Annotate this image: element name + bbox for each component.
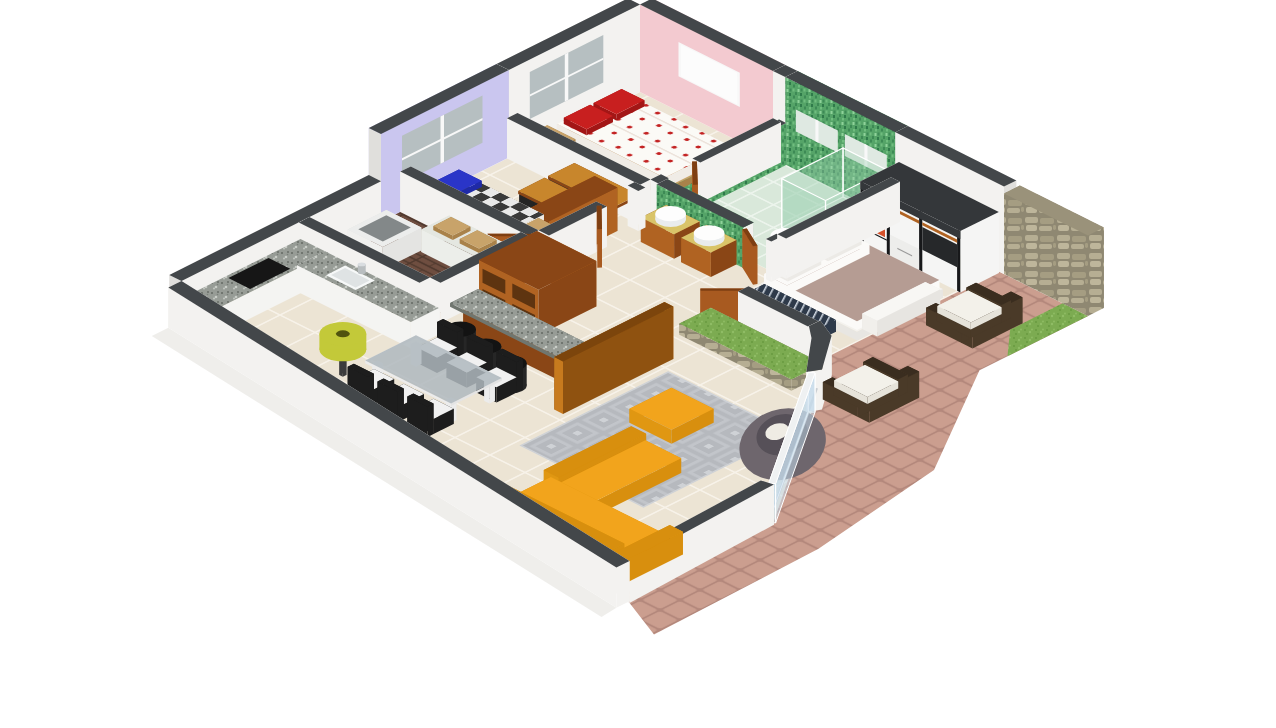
floorplan-3d-render — [0, 0, 1276, 728]
wall-bedroom1-east-a — [628, 182, 646, 231]
window-bedroom-1-mullion — [441, 115, 445, 164]
wardrobe-frame-4 — [957, 230, 960, 293]
kitchen-faucet — [358, 262, 366, 274]
wardrobe-frame-3 — [919, 211, 922, 274]
bathroom-window-1-mullion — [815, 119, 818, 143]
floorplan-stage — [0, 0, 1276, 728]
basin-1 — [655, 206, 686, 227]
floor-lamp-top — [336, 330, 350, 337]
basin-2 — [694, 225, 725, 246]
door-bedroom-1 — [597, 206, 602, 268]
floor-lamp-drum — [319, 322, 366, 361]
window-bedroom-2-mullion — [565, 53, 569, 102]
